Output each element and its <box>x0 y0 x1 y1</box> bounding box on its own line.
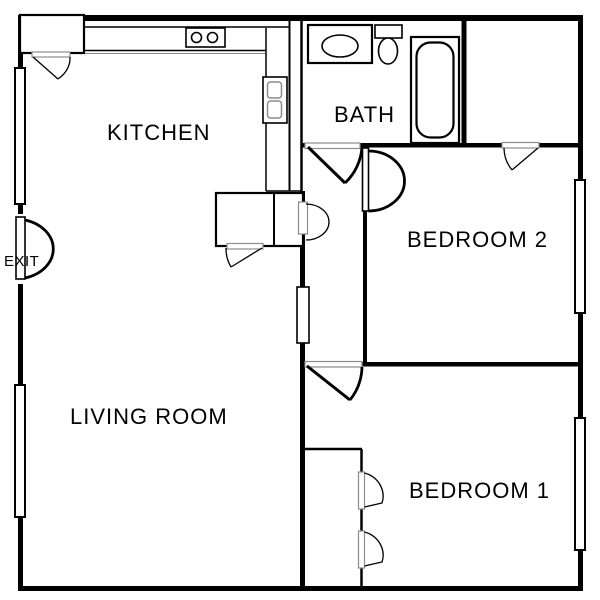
bathroom-vanity-sink-icon <box>308 25 372 63</box>
bedroom2-label: BEDROOM 2 <box>407 227 548 252</box>
cooktop-icon <box>186 28 225 47</box>
bath-label: BATH <box>334 102 395 127</box>
kitchen-label: KITCHEN <box>107 120 211 145</box>
exit-label: EXIT <box>4 253 39 270</box>
bathtub-icon <box>411 37 459 143</box>
window-kitchen-left <box>15 68 25 204</box>
window-bedroom2-right <box>575 180 585 313</box>
hallway-wall-opening <box>297 287 309 343</box>
window-bedroom1-right <box>575 418 585 550</box>
floor-plan: KITCHEN BATH BEDROOM 2 LIVING ROOM BEDRO… <box>0 0 600 600</box>
bedroom1-label: BEDROOM 1 <box>409 478 550 503</box>
living-room-label: LIVING ROOM <box>70 404 228 429</box>
kitchen-sink-icon <box>263 77 287 123</box>
floor-plan-drawing: KITCHEN BATH BEDROOM 2 LIVING ROOM BEDRO… <box>0 0 600 600</box>
window-living-room-left <box>15 385 25 517</box>
